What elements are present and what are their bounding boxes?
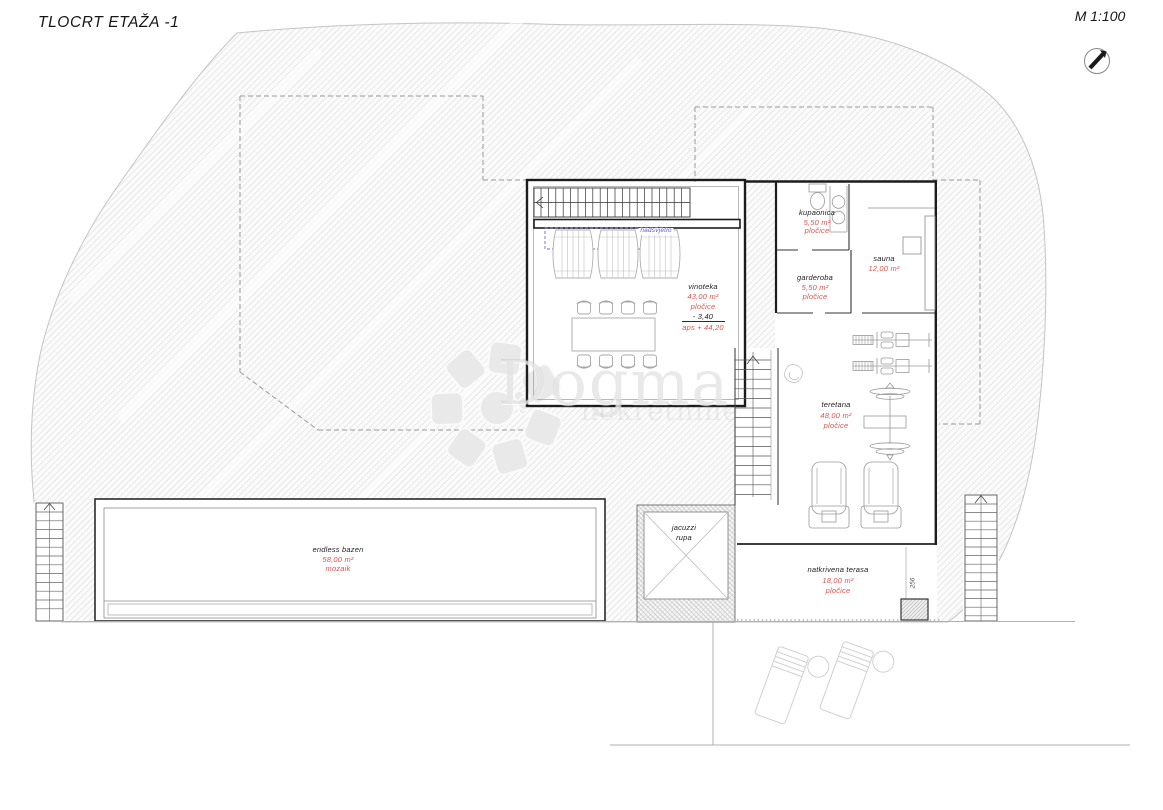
room-area-terasa: 18,00 m² [822,577,853,585]
room-area-kupaonica: 5,50 m² [804,219,831,227]
room-finish-vinoteka: pločice [691,303,716,311]
room-area-sauna: 12,00 m² [868,265,899,273]
room-finish-kupaonica: pločice [805,227,830,235]
room-label-jacuzzi: jacuzzi [672,524,696,532]
sunbed-icon [819,637,896,728]
level-abs-marker: aps + 44,20 [682,324,724,332]
barrel-icon [598,230,638,278]
room-area-vinoteka: 43,00 m² [687,293,718,301]
side-table-icon [870,648,897,675]
lounge-chairs [754,637,896,733]
room-label-vinoteka: vinoteka [688,283,718,291]
barrel-icon [640,230,680,278]
skylight-label: nadsvjetlo [638,228,673,235]
barrel-icon [553,230,593,278]
level-marker: - 3,40 [693,313,713,321]
room-finish-terasa: pločice [826,587,851,595]
site-lines [60,622,1130,746]
scale-label: M 1:100 [1075,8,1126,24]
terrace-pier [901,599,928,620]
north-arrow-icon [1085,49,1110,74]
room-finish-teretana: pločice [824,422,849,430]
room-label-terasa: natkrivena terasa [808,566,869,574]
side-table-icon [805,653,832,680]
terrace-dimension: 256 [910,578,917,589]
page-title: TLOCRT ETAŽA -1 [38,14,179,32]
wine-barrels [553,230,680,278]
room-label-kupaonica: kupaonica [799,209,835,217]
sunbed-icon [754,642,831,733]
room-area-garderoba: 5,50 m² [802,284,829,292]
room-area-bazen: 58,00 m² [322,556,353,564]
room-label-garderoba: garderoba [797,274,833,282]
room-label-teretana: teretana [821,401,850,409]
room-label-bazen: endless bazen [313,546,364,554]
room-label-jacuzzi-2: rupa [676,534,692,542]
room-label-sauna: sauna [873,255,894,263]
room-area-teretana: 48,00 m² [820,412,851,420]
watermark-subtitle: nekretnine [581,396,740,427]
room-finish-garderoba: pločice [803,293,828,301]
room-finish-bazen: mozaik [326,565,351,573]
floorplan-sheet: TLOCRT ETAŽA -1 M 1:100 Dogma nekretnine… [0,0,1163,810]
